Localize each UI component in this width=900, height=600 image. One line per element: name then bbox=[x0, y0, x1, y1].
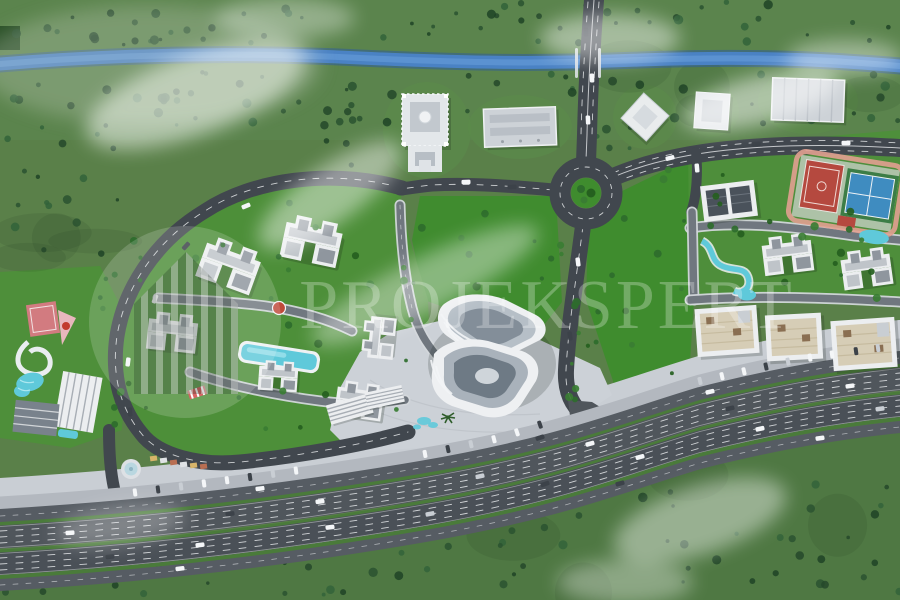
tree bbox=[320, 121, 328, 129]
tree bbox=[817, 555, 825, 563]
tree bbox=[276, 254, 282, 260]
tree bbox=[63, 195, 72, 204]
tree bbox=[837, 249, 845, 257]
tree bbox=[767, 219, 772, 224]
tree bbox=[773, 570, 779, 576]
tree bbox=[670, 371, 674, 375]
watermark-logo bbox=[89, 226, 281, 418]
tree bbox=[606, 145, 613, 152]
tree bbox=[343, 140, 350, 147]
tree bbox=[508, 527, 515, 534]
tree bbox=[281, 109, 286, 114]
tree bbox=[682, 219, 686, 223]
tree bbox=[638, 493, 648, 503]
tree bbox=[559, 252, 563, 256]
tree bbox=[741, 23, 749, 31]
tree bbox=[305, 563, 312, 570]
tree bbox=[383, 118, 392, 127]
tree bbox=[286, 267, 291, 272]
tree bbox=[749, 578, 755, 584]
tree bbox=[878, 503, 884, 509]
scene-canvas: PROJEKSPERT bbox=[0, 0, 900, 600]
dark-block bbox=[12, 400, 59, 436]
tree bbox=[806, 33, 809, 36]
tree bbox=[636, 80, 645, 89]
tree bbox=[686, 566, 691, 571]
tree bbox=[111, 404, 118, 411]
tree bbox=[344, 108, 351, 115]
tennis-court bbox=[840, 168, 899, 224]
tree bbox=[707, 222, 714, 229]
tree bbox=[285, 321, 292, 328]
tree bbox=[73, 218, 81, 226]
tree bbox=[867, 114, 875, 122]
tree bbox=[795, 551, 804, 560]
tree bbox=[349, 116, 357, 124]
tree bbox=[536, 13, 542, 19]
tree bbox=[248, 118, 257, 127]
tree bbox=[635, 8, 641, 14]
tree bbox=[487, 10, 496, 19]
tree bbox=[404, 359, 408, 363]
tree bbox=[140, 590, 147, 597]
tree bbox=[380, 34, 386, 40]
sports-complex bbox=[787, 150, 900, 236]
tree bbox=[568, 88, 577, 97]
tree bbox=[481, 210, 489, 218]
tree bbox=[699, 5, 703, 9]
tree bbox=[410, 22, 414, 26]
tree bbox=[674, 15, 684, 25]
tree bbox=[712, 193, 719, 200]
tree bbox=[466, 73, 472, 79]
warehouse-building bbox=[483, 107, 559, 151]
tree bbox=[4, 136, 11, 143]
tree bbox=[572, 385, 579, 392]
tree bbox=[821, 581, 829, 589]
tree bbox=[279, 387, 286, 394]
tree bbox=[322, 391, 329, 398]
tree bbox=[394, 571, 403, 580]
tree bbox=[541, 524, 548, 531]
tree bbox=[520, 563, 526, 569]
tree bbox=[847, 208, 855, 216]
tree bbox=[731, 226, 738, 233]
tree bbox=[737, 230, 744, 237]
tree bbox=[810, 222, 818, 230]
tree bbox=[563, 74, 568, 79]
tree bbox=[431, 25, 435, 29]
tree bbox=[721, 173, 725, 177]
tree bbox=[868, 268, 875, 275]
tree bbox=[881, 81, 890, 90]
tree bbox=[40, 125, 44, 129]
tree bbox=[323, 106, 332, 115]
tree bbox=[40, 588, 47, 595]
tree bbox=[859, 237, 864, 242]
tree bbox=[665, 166, 672, 173]
tree bbox=[602, 125, 611, 134]
tree bbox=[322, 593, 326, 597]
tree bbox=[628, 146, 632, 150]
tree bbox=[282, 591, 287, 596]
tree bbox=[368, 568, 377, 577]
tree bbox=[499, 580, 507, 588]
tree bbox=[98, 250, 104, 256]
tree bbox=[45, 202, 52, 209]
tree bbox=[850, 20, 855, 25]
fountain bbox=[121, 459, 141, 479]
tree bbox=[80, 174, 88, 182]
tree bbox=[494, 80, 501, 87]
tree bbox=[326, 585, 335, 594]
playground-dot bbox=[62, 322, 70, 330]
tree bbox=[518, 17, 524, 23]
tree bbox=[357, 116, 363, 122]
tree bbox=[871, 510, 879, 518]
basketball-court bbox=[799, 160, 844, 213]
tree bbox=[501, 3, 508, 10]
tree bbox=[789, 535, 796, 542]
tree bbox=[833, 261, 838, 266]
tree bbox=[798, 233, 806, 241]
tree bbox=[498, 543, 503, 548]
tree bbox=[668, 489, 674, 495]
car bbox=[461, 180, 470, 185]
tree bbox=[654, 250, 662, 258]
tree bbox=[670, 113, 679, 122]
tree bbox=[465, 109, 470, 114]
tree bbox=[345, 88, 348, 91]
tree bbox=[518, 0, 524, 6]
tree bbox=[340, 589, 346, 595]
solar-roof-building bbox=[700, 179, 761, 225]
tree bbox=[427, 32, 431, 36]
tree bbox=[348, 82, 357, 91]
tree bbox=[871, 560, 878, 567]
west-link-road bbox=[400, 184, 553, 190]
tree bbox=[557, 242, 564, 249]
tree bbox=[11, 223, 20, 232]
tree bbox=[576, 512, 583, 519]
tree bbox=[336, 118, 344, 126]
tree bbox=[839, 273, 843, 277]
tree bbox=[512, 572, 516, 576]
tree bbox=[884, 485, 889, 490]
tree bbox=[548, 71, 555, 78]
car bbox=[751, 141, 760, 146]
tree bbox=[111, 421, 118, 428]
tree bbox=[454, 11, 458, 15]
tree bbox=[586, 344, 590, 348]
tree bbox=[206, 581, 209, 584]
tree bbox=[399, 550, 405, 556]
tree bbox=[22, 169, 27, 174]
tree bbox=[743, 37, 751, 45]
tree bbox=[59, 140, 67, 148]
tree bbox=[570, 362, 574, 366]
roundabout bbox=[560, 167, 612, 219]
tree bbox=[873, 294, 881, 302]
tree bbox=[807, 504, 815, 512]
tree bbox=[679, 84, 688, 93]
tree bbox=[352, 252, 359, 259]
tree bbox=[424, 566, 430, 572]
tree bbox=[478, 26, 482, 30]
tree bbox=[16, 203, 21, 208]
tree bbox=[41, 247, 46, 252]
tree bbox=[296, 99, 301, 104]
tree bbox=[36, 175, 40, 179]
tree bbox=[755, 16, 761, 22]
car bbox=[694, 163, 699, 172]
tree bbox=[777, 534, 784, 541]
tree bbox=[876, 93, 884, 101]
tree bbox=[621, 215, 628, 222]
tree bbox=[348, 102, 354, 108]
pink-court bbox=[26, 301, 60, 337]
tree bbox=[660, 175, 668, 183]
tree bbox=[717, 202, 722, 207]
tree bbox=[608, 77, 617, 86]
watermark-text: PROJEKSPERT bbox=[299, 267, 795, 344]
tree bbox=[886, 25, 891, 30]
car bbox=[586, 115, 591, 124]
tree bbox=[394, 407, 399, 412]
tree bbox=[324, 138, 330, 144]
tree bbox=[116, 198, 119, 201]
tree bbox=[112, 582, 119, 589]
tree bbox=[812, 480, 820, 488]
terrain-patch bbox=[808, 494, 867, 557]
masterplan-render: PROJEKSPERT bbox=[0, 0, 900, 600]
tree bbox=[445, 543, 452, 550]
tree bbox=[418, 224, 426, 232]
car bbox=[841, 141, 850, 146]
tree bbox=[712, 555, 721, 564]
tree bbox=[548, 256, 554, 262]
car bbox=[127, 407, 132, 416]
tree bbox=[861, 574, 867, 580]
car bbox=[590, 73, 595, 82]
tree bbox=[263, 426, 268, 431]
tree bbox=[846, 226, 853, 233]
tree bbox=[387, 90, 396, 99]
tree bbox=[852, 111, 856, 115]
tree bbox=[298, 425, 303, 430]
tree bbox=[764, 0, 773, 9]
tree bbox=[846, 536, 850, 540]
car bbox=[507, 185, 516, 190]
tree bbox=[558, 540, 567, 549]
tree bbox=[565, 393, 573, 401]
